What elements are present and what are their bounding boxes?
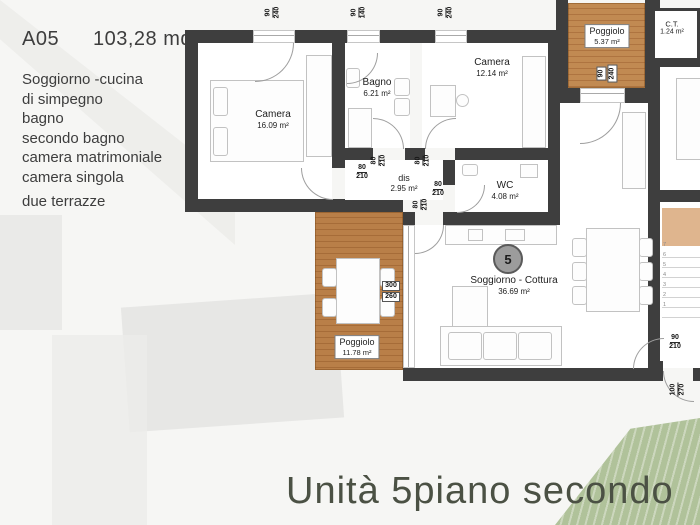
wall <box>332 148 373 160</box>
room-name: Poggiolo <box>589 26 624 37</box>
door-window-poggiolo-small <box>580 88 625 103</box>
room-name: Bagno <box>363 77 392 89</box>
room-area: 4.08 m² <box>491 192 518 202</box>
stair-step-number: 5 <box>663 263 666 269</box>
room-label-poggiolo-small: Poggiolo 5.37 m² <box>584 24 629 48</box>
unit-number-badge: 5 <box>493 244 523 274</box>
furniture-washer <box>520 164 538 178</box>
stair-step-number: 7 <box>663 243 666 249</box>
dim-height: 240 <box>447 7 455 19</box>
furniture-kitchen-hob <box>505 229 525 241</box>
furniture-dining-table <box>586 228 640 312</box>
dim-width: 80 <box>370 156 379 166</box>
dim-height: 240 <box>274 7 282 19</box>
furniture-wardrobe <box>522 56 546 148</box>
stair-step-number: 2 <box>663 293 666 299</box>
dim-height: 260 <box>382 292 400 302</box>
furniture-toilet <box>394 78 410 96</box>
dim-width: 90 <box>670 334 680 343</box>
dim-width: 80 <box>433 181 443 190</box>
wall <box>648 95 660 368</box>
furniture-pillow <box>213 87 228 116</box>
wall <box>693 368 700 381</box>
dim-window-camera-1: 90 240 <box>264 0 281 28</box>
furniture-kitchen-sink <box>468 229 483 241</box>
floor-plan: 7 6 5 4 3 2 1 <box>0 0 700 525</box>
furniture-kitchen-counter <box>445 225 557 245</box>
wall <box>295 30 347 43</box>
furniture-bed-adjacent <box>676 78 700 160</box>
dim-width: 80 <box>414 156 423 166</box>
dim-width: 90 <box>264 8 273 18</box>
dim-width: 80 <box>412 200 421 210</box>
dim-window-bagno: 90 140 <box>350 0 367 28</box>
furniture-sofa-cushion <box>518 332 552 360</box>
room-name: Poggiolo <box>339 337 374 348</box>
room-name: Camera <box>474 57 510 69</box>
furniture-sink <box>462 164 478 176</box>
dim-width: 100 <box>669 383 678 397</box>
dim-door-interior: 80 210 <box>352 164 372 181</box>
dim-door-stairwell: 100 270 <box>669 376 686 404</box>
room-label-dis: dis 2.95 m² <box>390 173 417 193</box>
stair-step-number: 1 <box>663 303 666 309</box>
dim-door-interior: 80 210 <box>428 181 448 198</box>
furniture-bidet <box>394 98 410 116</box>
window-camera-1 <box>253 30 295 43</box>
dim-width: 90 <box>350 8 359 18</box>
room-label-camera-1: Camera 16.09 m² <box>255 109 291 131</box>
room-label-ct: C.T. 1.24 m² <box>660 19 684 36</box>
dim-height: 140 <box>360 7 368 19</box>
stair-treads <box>662 248 700 318</box>
wall <box>455 148 560 160</box>
room-name: C.T. <box>660 19 684 28</box>
window-camera-2 <box>435 30 467 43</box>
dim-door-interior: 80 210 <box>370 148 387 174</box>
page-title: Unità 5piano secondo <box>286 470 674 513</box>
wall <box>403 368 663 381</box>
dim-height: 210 <box>380 155 388 167</box>
dim-window-soggiorno: 300 260 <box>379 281 403 302</box>
room-label-soggiorno: Soggiorno - Cottura 36.69 m² <box>470 275 557 297</box>
dim-door-poggiolo-small: 90 240 <box>596 58 617 90</box>
dim-window-camera-2: 90 240 <box>437 0 454 28</box>
room-area: 16.09 m² <box>255 121 291 131</box>
room-label-poggiolo-large: Poggiolo 11.78 m² <box>334 335 379 359</box>
dim-height: 240 <box>608 65 618 83</box>
dim-width: 80 <box>357 164 367 173</box>
stair-landing <box>662 208 700 246</box>
wall <box>185 199 345 212</box>
wall <box>185 43 198 212</box>
furniture-chair <box>322 268 337 287</box>
room-area: 36.69 m² <box>470 287 557 297</box>
room-label-camera-2: Camera 12.14 m² <box>474 57 510 79</box>
room-name: dis <box>390 173 417 184</box>
furniture-terrace-table <box>336 258 380 324</box>
dim-door-entry: 90 210 <box>665 334 685 351</box>
stair-step-number: 4 <box>663 273 666 279</box>
furniture-chair <box>572 238 587 257</box>
furniture-chair <box>639 238 653 257</box>
wall <box>660 190 700 202</box>
dim-height: 270 <box>679 384 687 396</box>
furniture-chair <box>322 298 337 317</box>
wall <box>548 88 580 103</box>
room-name: Camera <box>255 109 291 121</box>
room-name: WC <box>491 180 518 192</box>
wall <box>345 200 403 212</box>
window-soggiorno-large <box>403 225 415 368</box>
furniture-chair <box>639 262 653 281</box>
dim-width: 90 <box>437 8 446 18</box>
stair-step-number: 6 <box>663 253 666 259</box>
furniture-chair <box>572 286 587 305</box>
dim-height: 210 <box>432 190 444 198</box>
wall <box>380 30 435 43</box>
dim-door-interior: 80 210 <box>414 148 431 174</box>
dim-width: 90 <box>596 67 606 81</box>
furniture-sofa-cushion <box>483 332 517 360</box>
wall <box>443 212 560 225</box>
room-area: 6.21 m² <box>363 89 392 99</box>
dim-door-interior: 80 210 <box>412 192 429 218</box>
wall <box>185 30 253 43</box>
window-bagno <box>347 30 380 43</box>
room-area: 5.37 m² <box>589 37 624 46</box>
room-label-wc: WC 4.08 m² <box>491 180 518 202</box>
stair-step-number: 3 <box>663 283 666 289</box>
furniture-wardrobe <box>306 55 332 157</box>
dim-height: 210 <box>669 343 681 351</box>
dim-height: 210 <box>356 173 368 181</box>
furniture-desk <box>430 85 456 117</box>
dim-height: 210 <box>424 155 432 167</box>
room-name: Soggiorno - Cottura <box>470 275 557 287</box>
furniture-bathtub <box>348 108 372 148</box>
furniture-wardrobe <box>622 112 646 189</box>
room-label-bagno: Bagno 6.21 m² <box>363 77 392 99</box>
furniture-chair <box>572 262 587 281</box>
dim-height: 210 <box>422 199 430 211</box>
furniture-pillow <box>213 127 228 156</box>
furniture-chair <box>639 286 653 305</box>
furniture-chair <box>456 94 469 107</box>
room-area: 11.78 m² <box>339 348 374 357</box>
dim-width: 300 <box>382 281 400 291</box>
room-area: 1.24 m² <box>660 28 684 36</box>
room-area: 12.14 m² <box>474 69 510 79</box>
furniture-sofa-cushion <box>448 332 482 360</box>
